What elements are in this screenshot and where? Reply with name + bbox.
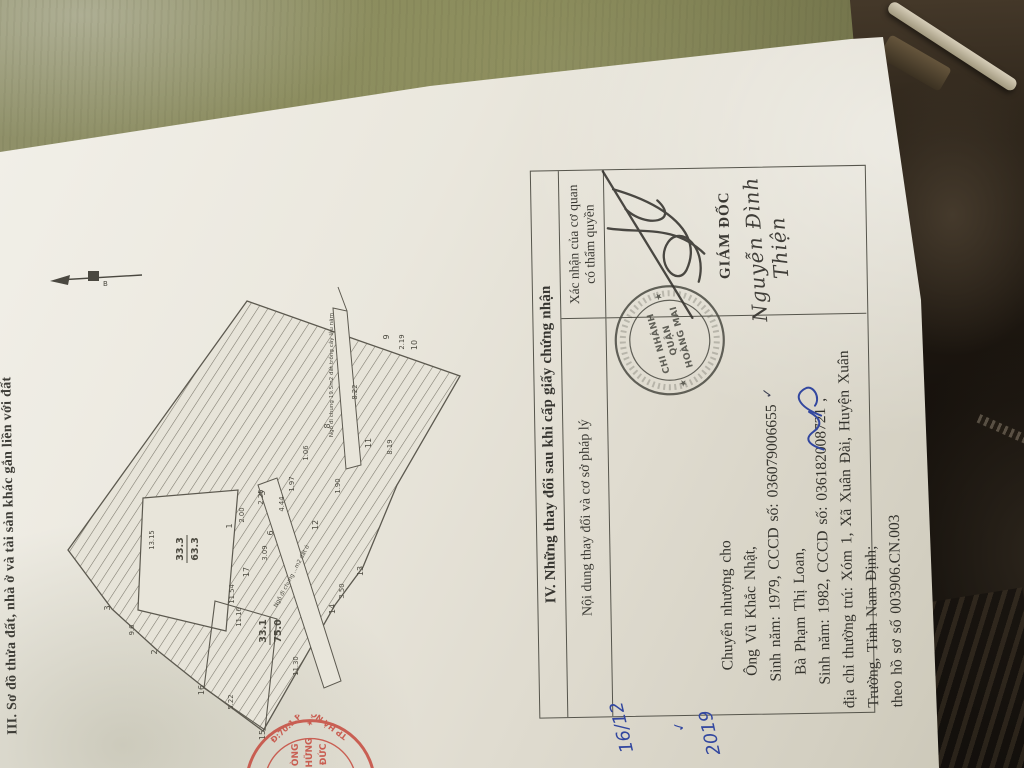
red-notary-stamp: Đ:70.1.P TP HÀ NỘI ÒNG HỮNG ĐỨC ★ xyxy=(239,713,381,768)
transfer-content: Chuyển nhượng cho Ông Vũ Khắc Nhật, Sinh… xyxy=(710,315,910,710)
document-content-rotated: III. Sơ đồ thửa đất, nhà ở và tài sản kh… xyxy=(0,0,940,760)
approver-title: GIÁM ĐỐC xyxy=(716,175,735,295)
svg-text:HỮNG: HỮNG xyxy=(303,738,316,768)
blue-ink-scribble xyxy=(787,380,836,456)
section3-title: III. Sơ đồ thửa đất, nhà ở và tài sản kh… xyxy=(0,305,22,735)
photo-scene: B 33.3 63.3 33.1 75.0 Ngõ đi chung 19.5m… xyxy=(0,0,1024,768)
check-mark: ✓ xyxy=(756,387,780,404)
stamp-star-icon: ★ xyxy=(305,719,314,726)
svg-text:ÒNG: ÒNG xyxy=(289,743,301,766)
col-confirm-header-line1: Xác nhận của cơ quan xyxy=(565,184,583,304)
col-content-header: Nội dung thay đổi và cơ sở pháp lý xyxy=(561,317,612,717)
svg-text:ĐỨC: ĐỨC xyxy=(317,743,329,765)
handwritten-check: ✓ xyxy=(670,718,689,734)
